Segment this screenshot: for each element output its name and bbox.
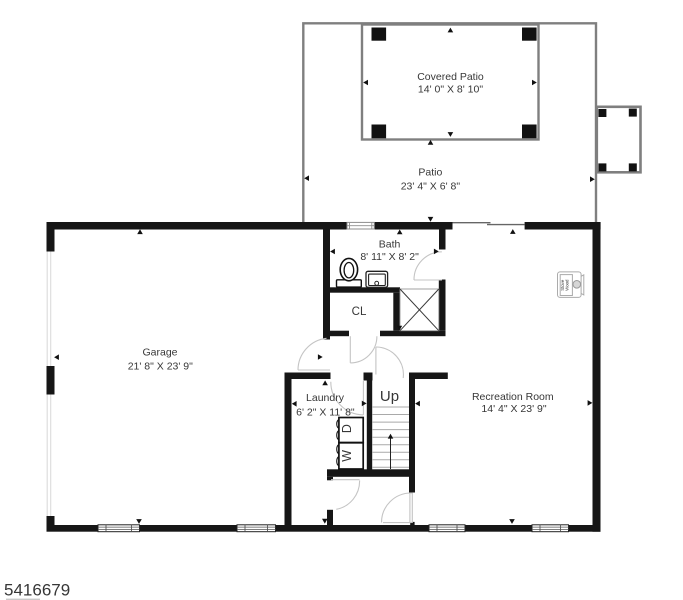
svg-text:Bath: Bath bbox=[379, 238, 401, 250]
svg-text:8' 11" X 8' 2": 8' 11" X 8' 2" bbox=[360, 251, 419, 263]
svg-text:5416679: 5416679 bbox=[4, 581, 70, 600]
svg-text:Up: Up bbox=[380, 388, 399, 405]
svg-text:14' 4" X 23' 9": 14' 4" X 23' 9" bbox=[481, 403, 546, 415]
svg-text:Patio: Patio bbox=[418, 166, 442, 178]
svg-text:Garage: Garage bbox=[142, 346, 177, 358]
svg-text:CL: CL bbox=[352, 306, 367, 318]
svg-text:W: W bbox=[340, 450, 354, 462]
svg-text:Wood: Wood bbox=[565, 279, 570, 291]
svg-text:Recreation Room: Recreation Room bbox=[472, 391, 554, 403]
svg-text:23' 4" X 6' 8": 23' 4" X 6' 8" bbox=[401, 181, 461, 193]
svg-text:21' 8" X 23' 9": 21' 8" X 23' 9" bbox=[128, 361, 193, 373]
svg-text:Stove: Stove bbox=[560, 279, 565, 291]
svg-text:6' 2" X 11' 8": 6' 2" X 11' 8" bbox=[296, 406, 355, 418]
svg-text:14' 0" X 8' 10": 14' 0" X 8' 10" bbox=[418, 84, 483, 96]
svg-text:Covered Patio: Covered Patio bbox=[417, 71, 484, 83]
svg-text:Laundry: Laundry bbox=[306, 392, 345, 404]
svg-text:D: D bbox=[340, 424, 354, 433]
